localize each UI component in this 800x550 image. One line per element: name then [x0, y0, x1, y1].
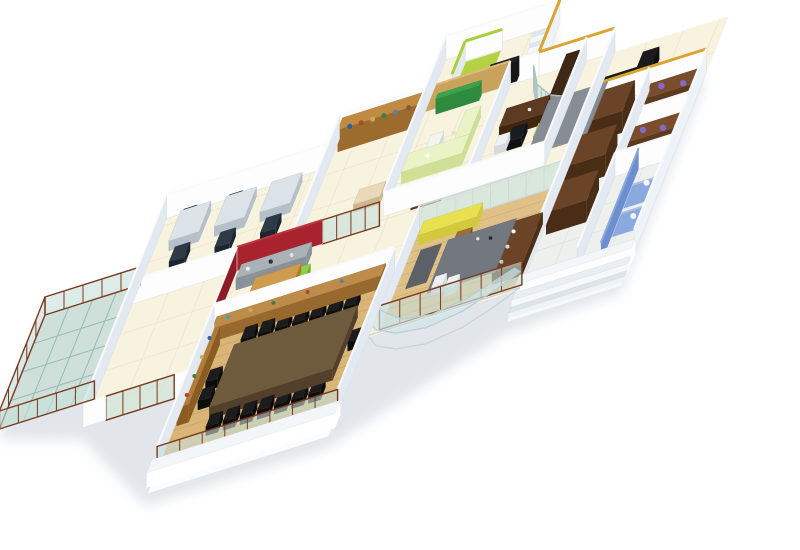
washbasin-2b — [660, 125, 666, 131]
library-book-blue — [347, 124, 352, 129]
executive-sideboard-item-3 — [499, 260, 503, 264]
washbasin-2a — [640, 127, 646, 133]
library-book-red — [359, 120, 364, 125]
pantry-appliance-dark — [269, 259, 273, 263]
washbasin-1b — [680, 80, 686, 86]
library-book-steel — [393, 110, 398, 115]
conference-shelf-book-3 — [192, 374, 196, 378]
library-book-brown — [406, 105, 411, 110]
library-book-tan — [370, 117, 375, 122]
credenza-item-steel — [340, 279, 344, 283]
executive-desk-monitor-dot — [489, 236, 493, 240]
reception-counter-item-2 — [452, 131, 456, 135]
reception-counter-item — [426, 154, 430, 158]
pantry-appliance-white — [246, 267, 250, 271]
washbasin-1a — [658, 83, 664, 89]
conference-shelf-book-4 — [185, 393, 189, 397]
credenza-item-green — [271, 301, 275, 305]
pantry-appliance-steel — [290, 253, 294, 257]
library-book-green — [381, 113, 386, 118]
manager-desk-item — [528, 108, 532, 112]
executive-sideboard-item-2 — [505, 245, 509, 249]
credenza-item-red — [306, 290, 310, 294]
conference-shelf-book-1 — [208, 336, 212, 340]
conference-shelf-book-2 — [200, 355, 204, 359]
executive-desk-papers — [476, 237, 479, 240]
credenza-item-cyan — [226, 315, 230, 319]
floor-plan-3d-render — [0, 0, 800, 550]
toilet-fixture-1 — [644, 180, 650, 186]
toilet-fixture-2 — [630, 213, 636, 219]
executive-sideboard-item-1 — [512, 229, 516, 233]
floor-plan-stage — [0, 0, 800, 550]
credenza-item-tan — [249, 308, 253, 312]
